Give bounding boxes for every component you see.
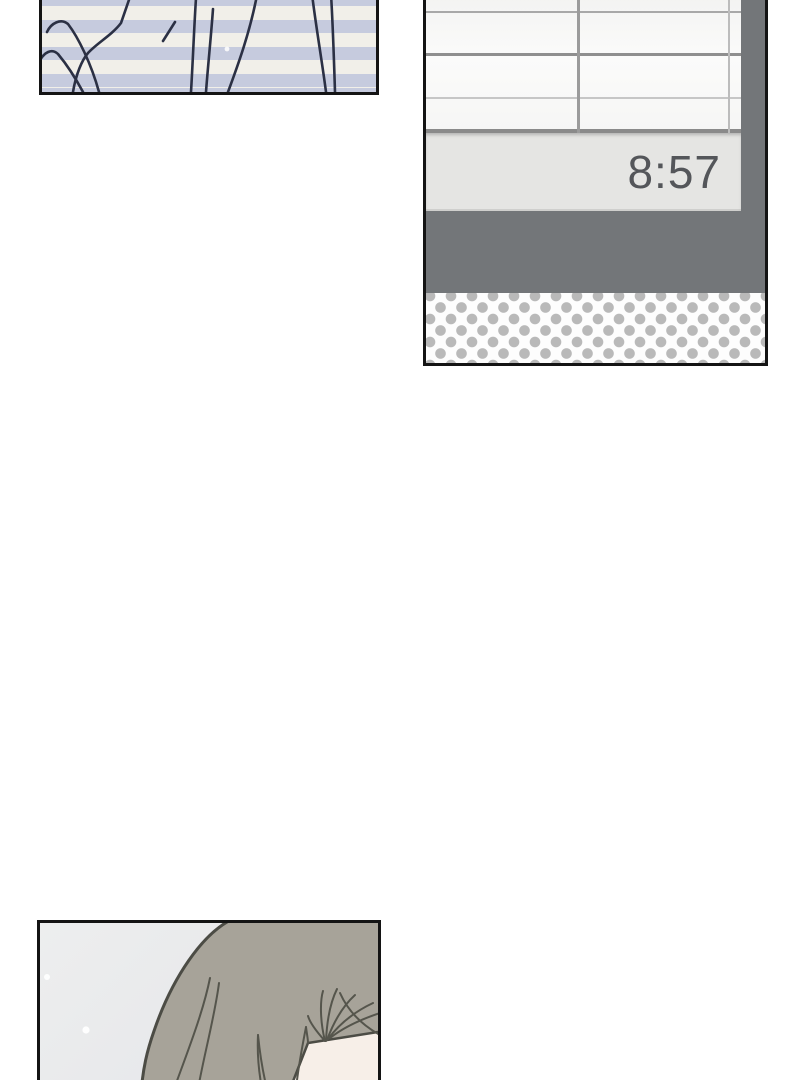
panel-striped-fabric	[39, 0, 379, 95]
wall-background: 8:57	[426, 0, 765, 363]
blind-slat-line	[426, 53, 741, 56]
sparkle-highlight	[44, 974, 50, 980]
comic-page: 8:57	[0, 0, 800, 1080]
character-head-art	[40, 923, 378, 1080]
blind-slat-line	[426, 11, 741, 13]
window-mullion	[728, 0, 730, 133]
phone-status-bar: 8:57	[426, 133, 741, 211]
halftone-dots-band	[426, 293, 765, 363]
fabric-fold-line-art	[42, 0, 376, 92]
clock-time: 8:57	[627, 145, 721, 199]
window-blinds	[426, 0, 741, 133]
panel-phone-clock: 8:57	[423, 0, 768, 366]
sparkle-highlight	[82, 1026, 89, 1033]
window-mullion	[577, 0, 580, 133]
blind-slat-line	[426, 97, 741, 99]
panel-character-head	[37, 920, 381, 1080]
sparkle-highlight	[225, 47, 230, 52]
